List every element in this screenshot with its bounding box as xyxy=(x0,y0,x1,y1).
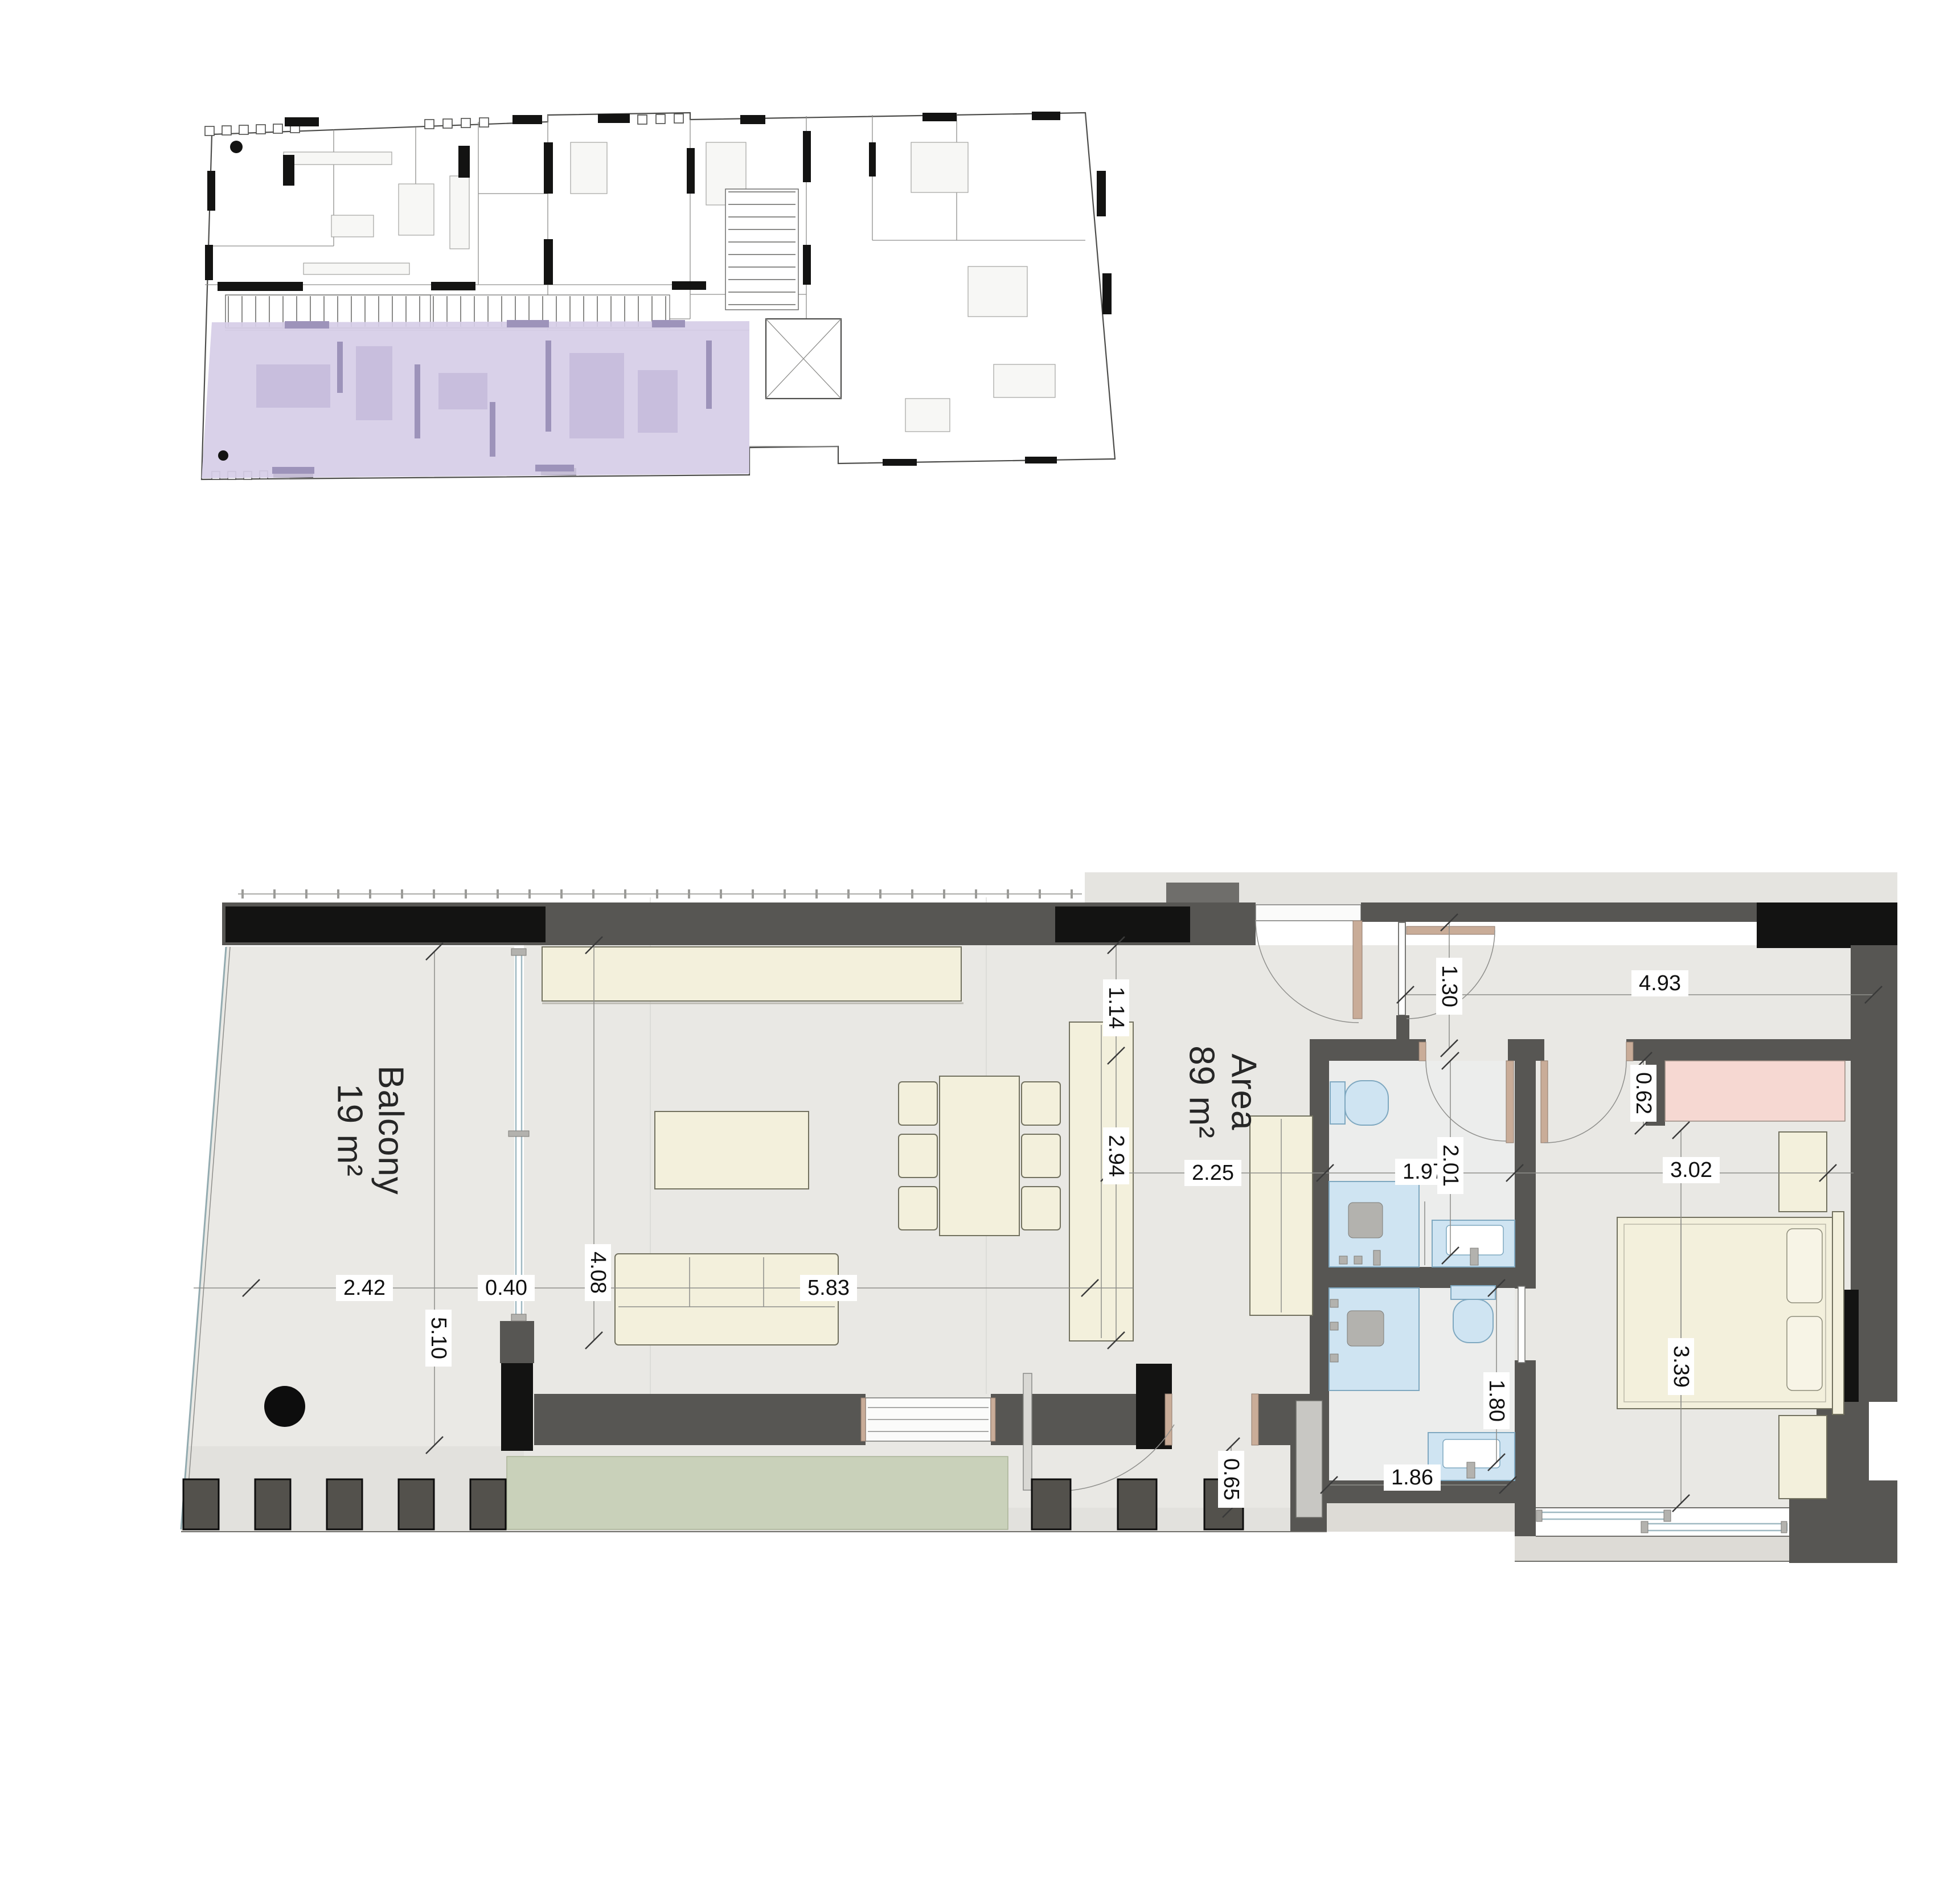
dining-chair xyxy=(1022,1082,1060,1125)
dimension-label-4.08: 4.08 xyxy=(585,1244,611,1301)
bath-sill xyxy=(1327,1503,1515,1532)
dimension-text: 2.01 xyxy=(1438,1144,1462,1187)
dining-set xyxy=(899,1076,1060,1236)
unit-label-title: Area xyxy=(1224,1054,1264,1131)
balcony-drain-dot xyxy=(264,1386,305,1427)
dimension-text: 5.10 xyxy=(427,1317,450,1359)
dimension-text: 5.83 xyxy=(807,1276,850,1300)
balcony-floor xyxy=(187,946,514,1446)
overview-drain-dot xyxy=(230,141,243,153)
dimension-text: 2.25 xyxy=(1192,1161,1234,1185)
pillow xyxy=(1787,1316,1822,1390)
top-wall-black-entry xyxy=(1055,906,1190,942)
dimension-label-1.30: 1.30 xyxy=(1436,958,1462,1015)
top-wall-black-left xyxy=(225,906,546,942)
dimension-label-5.10: 5.10 xyxy=(425,1310,452,1367)
dimension-label-2.94: 2.94 xyxy=(1103,1127,1129,1184)
shower-icon xyxy=(1329,1288,1419,1390)
bedroom-sill xyxy=(1515,1536,1789,1561)
overview-plan xyxy=(202,112,1115,479)
dimension-label-5.83: 5.83 xyxy=(800,1275,857,1301)
nightstand xyxy=(1779,1132,1827,1212)
headboard xyxy=(1832,1212,1844,1414)
dining-chair xyxy=(1022,1134,1060,1178)
entry-door-panel xyxy=(1256,905,1361,921)
dimension-label-2.01: 2.01 xyxy=(1437,1137,1463,1194)
overview-highlighted-unit xyxy=(202,320,749,478)
dimension-text: 1.30 xyxy=(1437,965,1461,1007)
dimension-label-0.62: 0.62 xyxy=(1630,1065,1656,1122)
dimension-text: 4.08 xyxy=(586,1252,610,1294)
toilet-icon xyxy=(1451,1286,1495,1343)
dimension-label-0.40: 0.40 xyxy=(478,1275,535,1301)
dimension-text: 2.42 xyxy=(343,1276,386,1300)
sink-icon xyxy=(1432,1220,1515,1267)
dimension-text: 1.80 xyxy=(1485,1380,1508,1422)
dimension-label-3.39: 3.39 xyxy=(1668,1338,1694,1395)
dimension-text: 0.65 xyxy=(1219,1458,1243,1500)
dimension-text: 1.14 xyxy=(1104,987,1128,1029)
dimension-label-1.86: 1.86 xyxy=(1384,1464,1441,1491)
balcony-pillar-black xyxy=(501,1363,533,1451)
overview-stairwell xyxy=(725,189,798,310)
nightstand xyxy=(1779,1416,1827,1499)
right-wall-black-strip xyxy=(1844,1290,1859,1402)
bedroom-window xyxy=(1536,1508,1789,1536)
dimension-text: 1.86 xyxy=(1391,1466,1433,1490)
dimension-label-2.42: 2.42 xyxy=(336,1275,393,1301)
planter-green xyxy=(507,1457,1008,1529)
pillow xyxy=(1787,1229,1822,1303)
dimension-text: 0.62 xyxy=(1631,1072,1655,1114)
overview-elevator xyxy=(766,319,841,399)
balcony-label-area: 19 m² xyxy=(330,1084,370,1176)
living-south-window xyxy=(861,1398,995,1441)
shower-icon xyxy=(1329,1182,1425,1267)
unit-label-area: 89 m² xyxy=(1182,1045,1221,1138)
dining-chair xyxy=(899,1187,937,1230)
dining-chair xyxy=(1022,1187,1060,1230)
wardrobe-pink xyxy=(1665,1061,1845,1121)
dimension-label-1.14: 1.14 xyxy=(1103,979,1129,1036)
bed xyxy=(1617,1212,1844,1414)
dimension-text: 3.02 xyxy=(1670,1158,1712,1182)
overview-drain-dot-2 xyxy=(218,450,228,461)
toilet-icon xyxy=(1330,1081,1388,1125)
detail-plan: 2.42 0.40 5.83 2.25 1.97 3.02 4.93 1.86 xyxy=(181,872,1897,1563)
dimension-text: 4.93 xyxy=(1639,971,1681,995)
top-wall-black-right xyxy=(1757,902,1897,948)
dimension-text: 2.94 xyxy=(1104,1135,1128,1177)
dimension-label-4.93: 4.93 xyxy=(1631,970,1688,996)
dining-table xyxy=(940,1076,1019,1236)
walkway-niche xyxy=(1296,1401,1322,1517)
kitchen-counter xyxy=(542,947,961,1001)
dimension-label-2.25: 2.25 xyxy=(1184,1160,1241,1186)
coffee-table xyxy=(655,1111,809,1189)
dining-chair xyxy=(899,1082,937,1125)
floor-plan-canvas: 2.42 0.40 5.83 2.25 1.97 3.02 4.93 1.86 xyxy=(0,0,1960,1883)
dimension-text: 3.39 xyxy=(1669,1345,1693,1388)
pocket-door-leaf xyxy=(1518,1286,1525,1363)
dimension-label-0.65: 0.65 xyxy=(1218,1451,1244,1508)
dimension-text: 0.40 xyxy=(485,1276,527,1300)
outside-pillar xyxy=(1166,883,1239,905)
dimension-label-1.80: 1.80 xyxy=(1483,1372,1510,1429)
balcony-label-title: Balcony xyxy=(371,1065,411,1195)
dining-chair xyxy=(899,1134,937,1178)
dimension-label-3.02: 3.02 xyxy=(1663,1157,1720,1183)
